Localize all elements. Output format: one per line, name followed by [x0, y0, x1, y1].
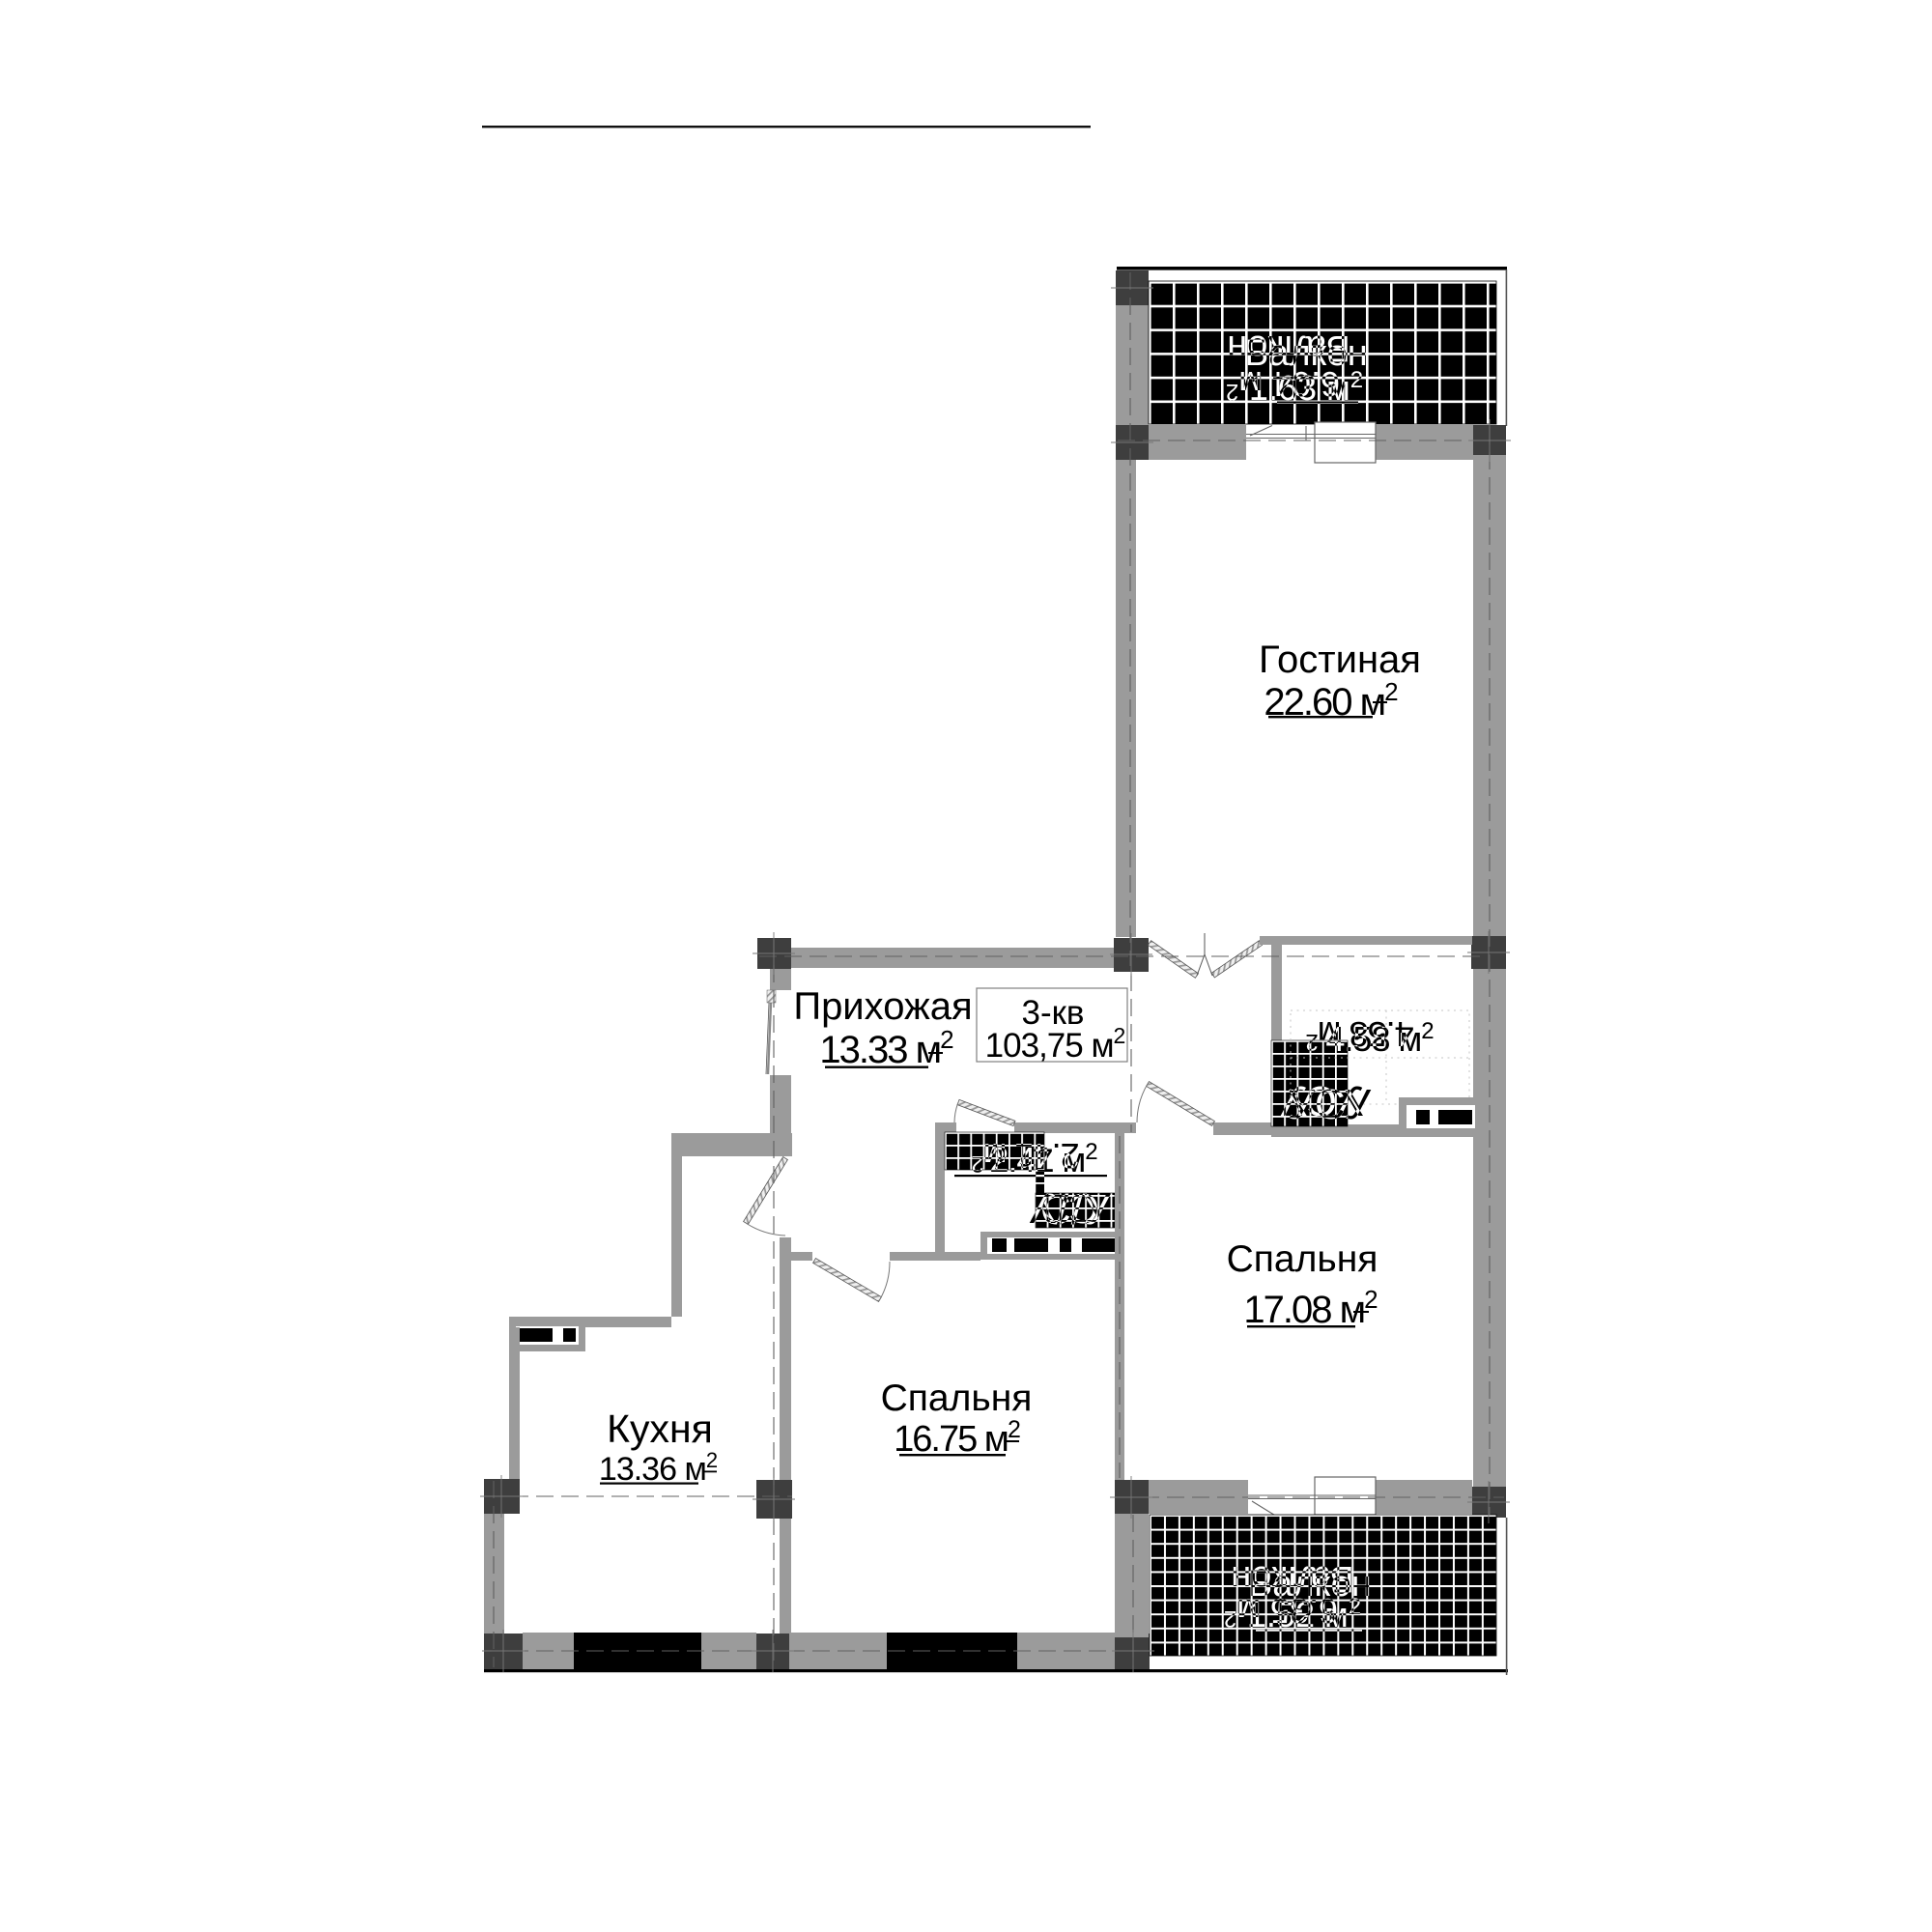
- svg-text:УСУ: УСУ: [1280, 1077, 1364, 1124]
- svg-text:Гостиная: Гостиная: [1259, 639, 1421, 681]
- svg-text:Прихожая: Прихожая: [793, 985, 972, 1028]
- svg-text:Спальня: Спальня: [1227, 1238, 1378, 1280]
- svg-text:103,75 м2: 103,75 м2: [985, 1023, 1125, 1065]
- svg-text:Балкон: Балкон: [1227, 327, 1350, 368]
- svg-text:13.36 м2: 13.36 м2: [599, 1448, 718, 1488]
- svg-text:2.41 м2: 2.41 м2: [972, 1136, 1080, 1177]
- svg-text:13.33 м2: 13.33 м2: [819, 1025, 953, 1071]
- svg-text:6.35 м2: 6.35 м2: [1224, 1591, 1338, 1632]
- svg-text:16.75 м2: 16.75 м2: [894, 1416, 1020, 1460]
- svg-text:4.58 м2: 4.58 м2: [1306, 1014, 1414, 1055]
- svg-text:17.08 м2: 17.08 м2: [1243, 1285, 1378, 1331]
- svg-text:С/У: С/У: [1029, 1184, 1099, 1232]
- svg-text:Кухня: Кухня: [607, 1406, 713, 1451]
- svg-text:Спальня: Спальня: [881, 1378, 1033, 1419]
- svg-text:6.04 м2: 6.04 м2: [1226, 364, 1340, 405]
